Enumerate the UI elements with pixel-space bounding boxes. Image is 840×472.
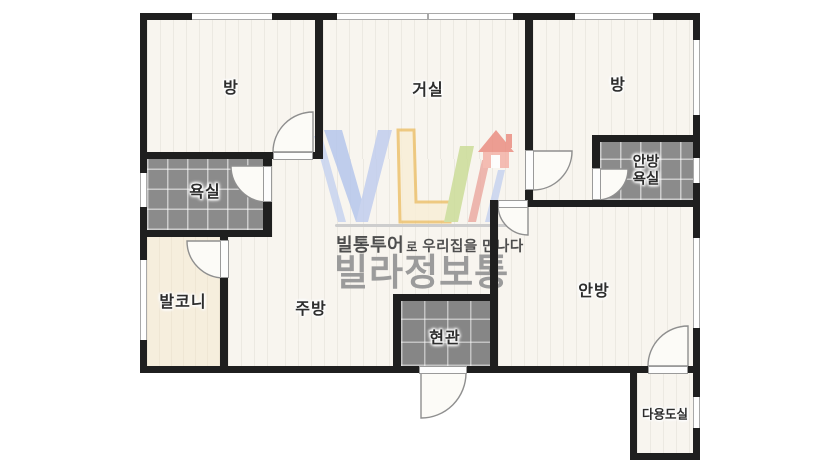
door-leaf-master-bedroom xyxy=(498,200,528,208)
door-arc-balcony xyxy=(187,241,224,278)
door-arc-front-entrance xyxy=(421,373,466,418)
door-arc-master-bedroom xyxy=(498,205,528,235)
door-arc-utility-room xyxy=(648,326,688,366)
wall-entrance-left xyxy=(393,294,401,373)
wall-master-bathroom-top xyxy=(592,135,700,142)
door-arc-master-bathroom xyxy=(597,169,628,200)
floorplan: 빌통투어로우리집을 만나다 빌라정보통 방 xyxy=(0,0,840,472)
room-label-master-bathroom: 안방 욕실 xyxy=(633,154,660,187)
wall-bathroom-bottom xyxy=(140,230,272,237)
window-room-tr-right xyxy=(693,40,700,115)
window-master-bedroom-right xyxy=(693,238,700,328)
room-label-balcony: 발코니 xyxy=(159,288,206,312)
room-label-living-room: 거실 xyxy=(412,76,443,100)
window-master-bathroom-right xyxy=(693,158,700,183)
wall-room-tl-divider xyxy=(315,13,323,159)
door-leaf-master-bathroom xyxy=(592,168,601,200)
window-bathroom-left xyxy=(140,173,147,207)
door-arcs-layer xyxy=(0,0,840,472)
door-leaf-front-entrance xyxy=(419,366,467,374)
master-bathroom-label-line1: 안방 xyxy=(633,154,660,171)
room-label-room-top-left: 방 xyxy=(223,74,239,98)
room-label-entrance: 현관 xyxy=(429,324,460,348)
room-label-bathroom: 욕실 xyxy=(189,178,220,202)
window-room-tl-top xyxy=(192,13,272,20)
window-utility-right xyxy=(693,397,700,428)
door-leaf-utility-room xyxy=(648,366,688,374)
wall-utility-left xyxy=(630,366,637,460)
room-label-kitchen: 주방 xyxy=(295,295,326,319)
room-label-room-top-right: 방 xyxy=(610,71,626,95)
window-living-top xyxy=(337,13,513,20)
door-arc-room-top-left xyxy=(273,112,313,152)
door-leaf-room-top-left xyxy=(273,152,313,160)
window-mullion xyxy=(427,14,429,19)
room-label-utility-room: 다용도실 xyxy=(642,404,688,423)
door-leaf-bathroom xyxy=(263,166,273,202)
door-leaf-living-hallway xyxy=(525,150,534,190)
wall-utility-bottom xyxy=(630,453,700,460)
wall-entrance-top xyxy=(393,294,498,301)
wall-master-bedroom-top xyxy=(528,200,700,207)
door-leaf-balcony xyxy=(220,240,229,278)
room-label-master-bedroom: 안방 xyxy=(578,277,609,301)
window-room-tr-top xyxy=(575,13,653,20)
window-balcony-left xyxy=(140,260,147,340)
door-arc-living-hallway xyxy=(533,151,572,190)
wall-master-bedroom-left xyxy=(490,200,498,373)
master-bathroom-label-line2: 욕실 xyxy=(633,171,660,188)
